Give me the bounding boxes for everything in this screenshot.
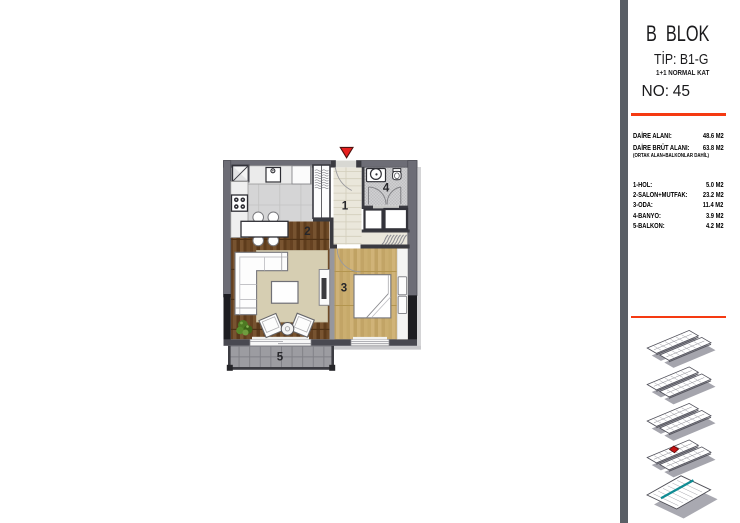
svg-text:1: 1: [342, 201, 349, 213]
svg-text:2: 2: [304, 226, 310, 238]
svg-text:3: 3: [341, 283, 347, 295]
svg-text:5: 5: [277, 351, 284, 363]
svg-text:4: 4: [383, 183, 390, 195]
